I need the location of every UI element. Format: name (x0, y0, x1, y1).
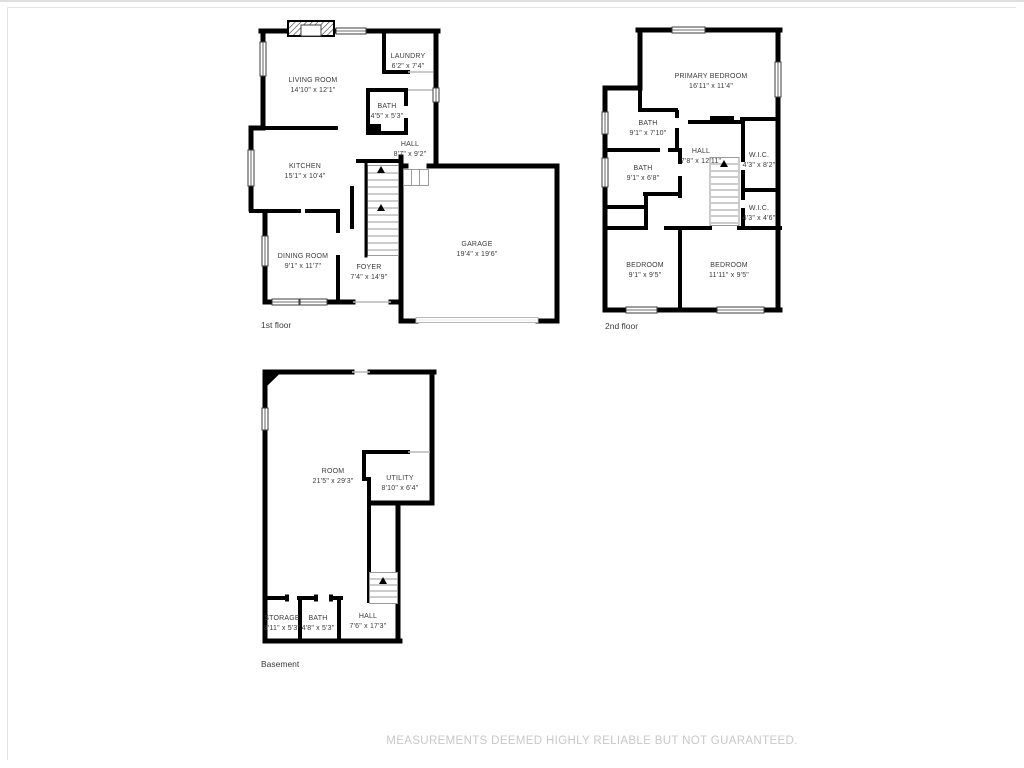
room-name: BEDROOM (709, 261, 749, 271)
second-floor-staircase (710, 158, 739, 226)
basement-door-openings (352, 372, 430, 452)
room-label-hall-second: HALL7'8" x 12'11" (681, 147, 721, 167)
room-dims: 8'10" x 6'4" (382, 484, 419, 494)
room-name: BATH (371, 102, 404, 112)
first-floor-staircase (366, 161, 429, 256)
room-label-dining-room: DINING ROOM9'1" x 11'7" (278, 252, 328, 272)
stair-header (710, 116, 734, 124)
room-dims: 9'1" x 7'10" (630, 129, 667, 139)
room-name: GARAGE (457, 240, 498, 250)
basement-outer-walls (265, 372, 434, 641)
room-name: BEDROOM (626, 261, 664, 271)
basement-windows (262, 408, 268, 430)
room-name: DINING ROOM (278, 252, 328, 262)
room-dims: 16'11" x 11'4" (675, 82, 748, 92)
room-name: W.I.C. (743, 151, 776, 161)
room-label-foyer: FOYER7'4" x 14'9" (351, 263, 388, 283)
room-dims: 9'1" x 9'5" (626, 271, 664, 281)
disclaimer-text: MEASUREMENTS DEEMED HIGHLY RELIABLE BUT … (386, 735, 797, 747)
room-label-hall-basement: HALL7'6" x 17'3" (350, 612, 387, 632)
room-dims: 9'1" x 11'7" (278, 262, 328, 272)
room-dims: 4'3" x 4'6" (743, 214, 776, 224)
room-name: W.I.C. (743, 204, 776, 214)
room-name: BATH (630, 119, 667, 129)
room-name: ROOM (313, 467, 354, 477)
floor-caption-second: 2nd floor (605, 321, 638, 331)
room-label-bath-basement: BATH4'8" x 5'3" (302, 614, 335, 634)
room-dims: 7'4" x 14'9" (351, 273, 388, 283)
fireplace (288, 21, 334, 36)
room-name: HALL (394, 140, 427, 150)
door-jamb (285, 595, 289, 602)
room-label-wic-large: W.I.C.4'3" x 8'2" (743, 151, 776, 171)
room-name: FOYER (351, 263, 388, 273)
room-dims: 15'1" x 10'4" (285, 172, 326, 182)
room-name: HALL (350, 612, 387, 622)
room-label-wic-small: W.I.C.4'3" x 4'6" (743, 204, 776, 224)
floorplan-basement (262, 370, 434, 642)
garage-door (416, 318, 538, 323)
room-label-bath-first: BATH4'5" x 5'3" (371, 102, 404, 122)
room-dims: 19'4" x 19'6" (457, 250, 498, 260)
room-label-storage: STORAGE3'11" x 5'3" (264, 614, 300, 634)
room-label-bedroom-right: BEDROOM11'11" x 9'5" (709, 261, 749, 281)
floorplan-drawing (0, 0, 1024, 768)
room-dims: 9'1" x 6'8" (627, 174, 660, 184)
room-name: LAUNDRY (391, 52, 426, 62)
room-label-kitchen: KITCHEN15'1" x 10'4" (285, 162, 326, 182)
room-label-garage: GARAGE19'4" x 19'6" (457, 240, 498, 260)
room-name: STORAGE (264, 614, 300, 624)
room-label-bath-upper: BATH9'1" x 7'10" (630, 119, 667, 139)
room-dims: 4'5" x 5'3" (371, 112, 404, 122)
room-label-utility: UTILITY8'10" x 6'4" (382, 474, 419, 494)
room-label-basement-room: ROOM21'5" x 29'3" (313, 467, 354, 487)
floor-caption-first: 1st floor (261, 320, 291, 330)
room-label-laundry: LAUNDRY6'2" x 7'4" (391, 52, 426, 72)
room-name: KITCHEN (285, 162, 326, 172)
room-dims: 11'11" x 9'5" (709, 271, 749, 281)
stair-landing (404, 170, 429, 186)
room-name: BATH (302, 614, 335, 624)
room-name: HALL (681, 147, 721, 157)
room-label-hall-first: HALL8'7" x 9'2" (394, 140, 427, 160)
basement-staircase (370, 573, 398, 604)
room-dims: 3'11" x 5'3" (264, 624, 300, 634)
room-dims: 4'3" x 8'2" (743, 161, 776, 171)
room-name: LIVING ROOM (289, 76, 338, 86)
room-label-living-room: LIVING ROOM14'10" x 12'1" (289, 76, 338, 96)
room-label-bedroom-left: BEDROOM9'1" x 9'5" (626, 261, 664, 281)
room-name: UTILITY (382, 474, 419, 484)
door-jamb (314, 595, 318, 602)
room-name: PRIMARY BEDROOM (675, 72, 748, 82)
room-label-primary-bedroom: PRIMARY BEDROOM16'11" x 11'4" (675, 72, 748, 92)
room-dims: 4'8" x 5'3" (302, 624, 335, 634)
page-frame (0, 0, 1024, 760)
room-dims: 21'5" x 29'3" (313, 477, 354, 487)
room-dims: 14'10" x 12'1" (289, 86, 338, 96)
room-name: BATH (627, 164, 660, 174)
bath-fixture (369, 124, 381, 133)
door-jamb (329, 595, 333, 602)
room-label-bath-second: BATH9'1" x 6'8" (627, 164, 660, 184)
floor-caption-basement: Basement (261, 659, 299, 669)
room-dims: 7'8" x 12'11" (681, 157, 721, 167)
room-dims: 8'7" x 9'2" (394, 150, 427, 160)
room-dims: 7'6" x 17'3" (350, 622, 387, 632)
room-dims: 6'2" x 7'4" (391, 62, 426, 72)
